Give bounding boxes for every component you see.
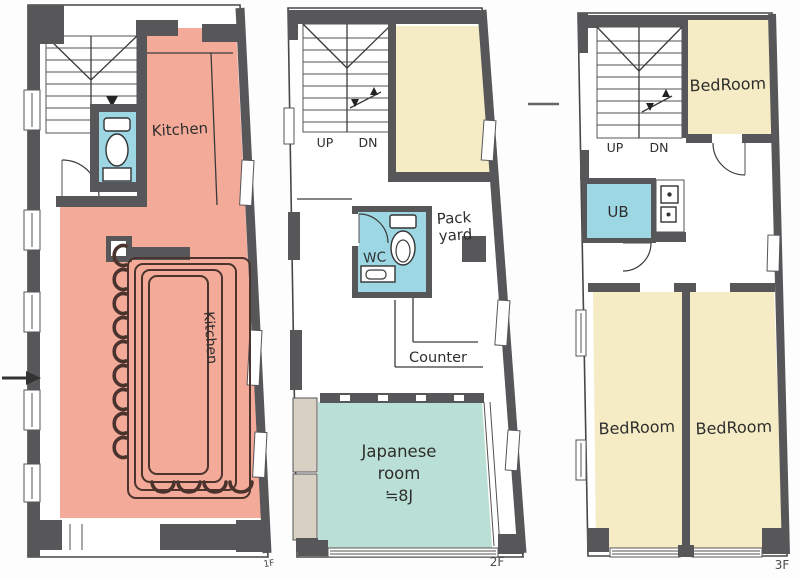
- toilet-icon: [391, 231, 415, 265]
- pack-yard-label-line2: yard: [438, 225, 472, 245]
- toilet-tank-icon: [390, 215, 416, 228]
- bedroom-right-3f: BedRoom: [690, 292, 783, 548]
- toilet-tank-icon: [104, 118, 130, 131]
- japanese-room-2f: Japanese room ≒8J: [318, 393, 500, 548]
- up-label-2f: UP: [317, 135, 334, 150]
- up-label-3f: UP: [607, 140, 624, 155]
- bedroom-divider-wall: [682, 292, 690, 548]
- japanese-room-label-line1: Japanese: [361, 442, 437, 461]
- japanese-room-label-line2: room: [378, 464, 421, 483]
- toilet-icon: [106, 134, 128, 166]
- floor-1f: Kitchen Kitchen 1F: [2, 5, 275, 570]
- kitchenette-3f: [656, 180, 686, 242]
- floorplan-page: Kitchen Kitchen 1F: [0, 0, 800, 579]
- ub-label: UB: [607, 203, 628, 221]
- floor-tag-1f: 1F: [263, 559, 275, 570]
- floor-tag-2f: 2F: [490, 555, 505, 569]
- ub-room-3f: UB: [582, 178, 656, 243]
- bedroom-top-label: BedRoom: [689, 74, 766, 96]
- left-wall-1f: [24, 5, 40, 557]
- staircase-3f: UP DN: [597, 27, 682, 155]
- bedroom-right-label: BedRoom: [695, 417, 772, 439]
- bedroom-left-3f: BedRoom: [593, 292, 682, 548]
- dn-label-3f: DN: [650, 140, 669, 155]
- dn-label-2f: DN: [359, 135, 378, 150]
- sink-icon: [103, 168, 131, 181]
- room-cream-2f: [395, 26, 492, 178]
- balcony-ledge: [293, 474, 317, 540]
- japanese-room-size-label: ≒8J: [385, 486, 413, 505]
- counter-label: Counter: [409, 350, 467, 366]
- balcony-ledge: [293, 398, 317, 472]
- floor-2f: UP DN: [284, 8, 524, 569]
- bedroom-left-label: BedRoom: [598, 417, 675, 439]
- floor-tag-3f: 3F: [775, 558, 790, 572]
- floorplan-canvas: Kitchen Kitchen 1F: [0, 0, 800, 579]
- floor-3f: UP DN BedRoom UB: [576, 13, 789, 572]
- wc-room-2f: WC: [352, 206, 432, 298]
- wc-label: WC: [363, 249, 387, 267]
- room-top-2f: [388, 22, 492, 182]
- kitchen-label: Kitchen: [151, 119, 208, 140]
